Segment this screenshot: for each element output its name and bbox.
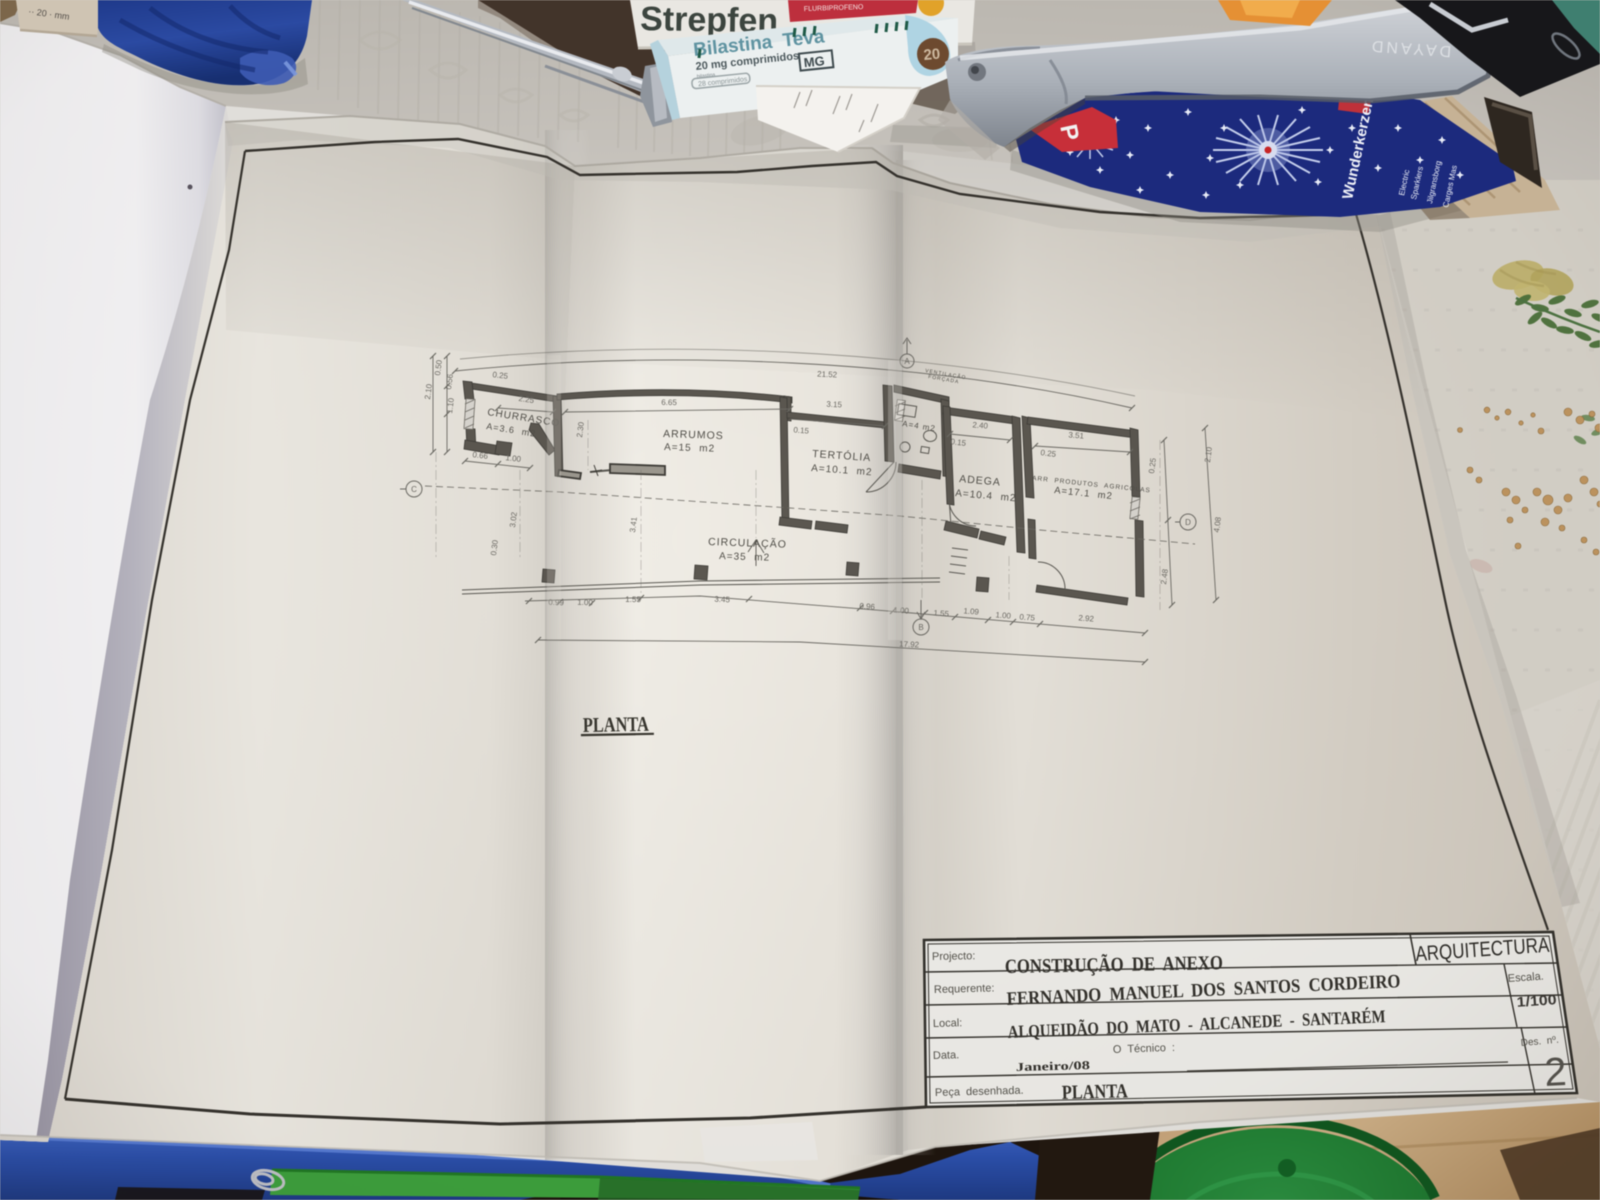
svg-text:MG: MG — [803, 53, 825, 70]
svg-text:20: 20 — [923, 46, 941, 64]
